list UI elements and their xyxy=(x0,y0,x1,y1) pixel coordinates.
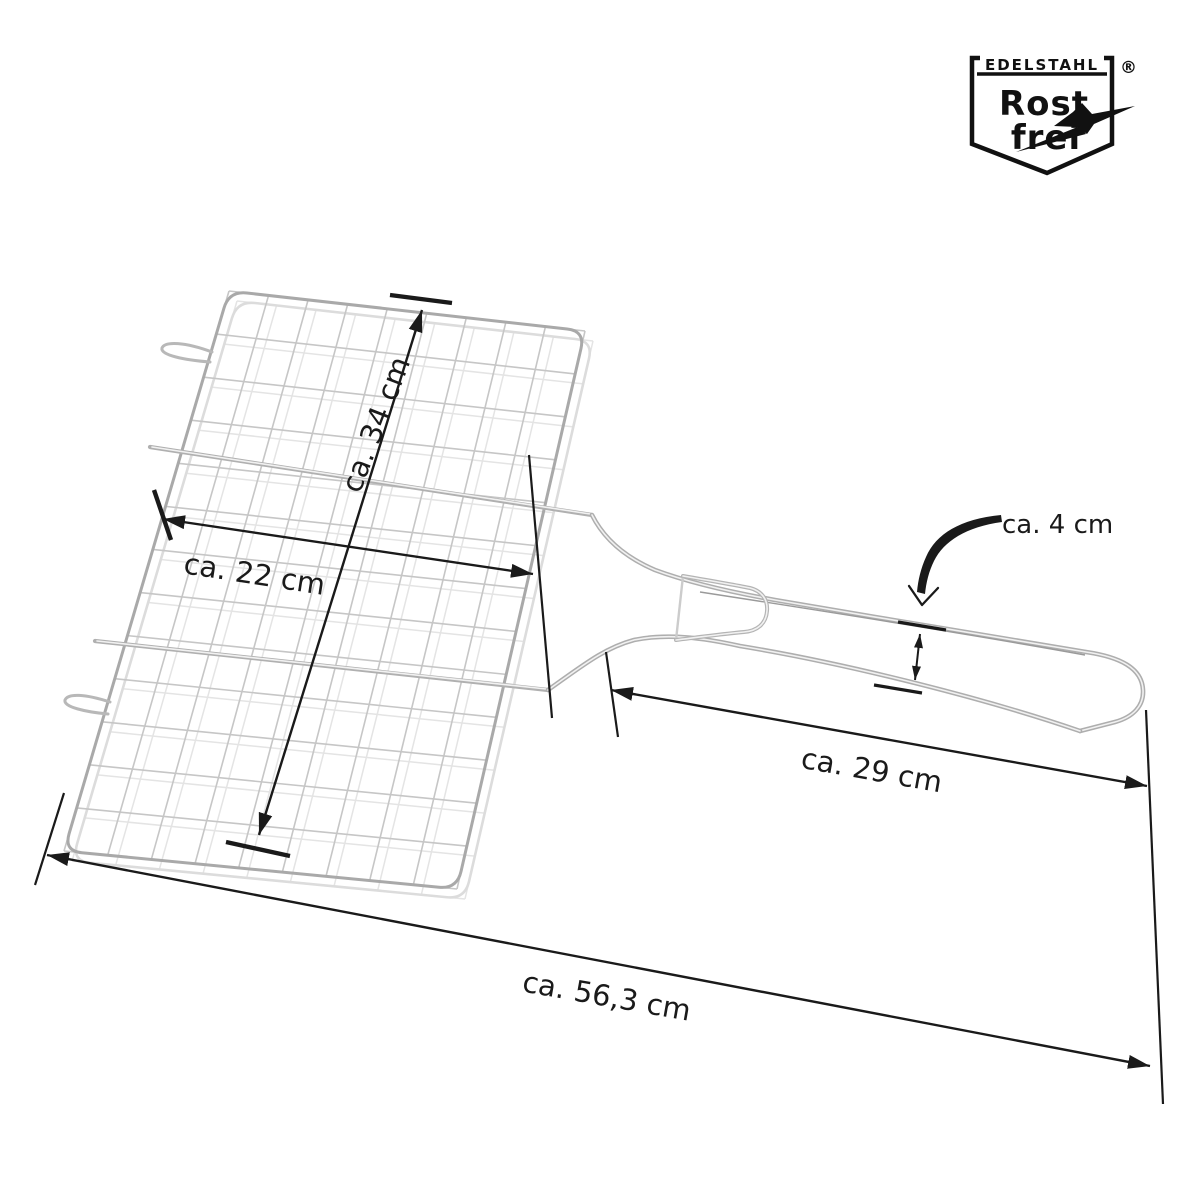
logo-registered-mark: ® xyxy=(1120,58,1137,78)
mesh-wire xyxy=(123,689,505,728)
grill-mesh-front-layer xyxy=(64,291,585,889)
mesh-frame xyxy=(68,293,582,888)
dimension-tick xyxy=(390,295,452,303)
dimension-extension xyxy=(1146,710,1163,1104)
mesh-wire xyxy=(77,808,467,846)
rostfrei-logo: EDELSTAHL ® Rost frei xyxy=(972,56,1137,173)
dimension-total-length: ca. 56,3 cm xyxy=(35,793,1150,1066)
dimension-tick xyxy=(226,842,290,856)
dimension-line-4 xyxy=(915,634,920,680)
dimension-tick xyxy=(874,685,922,693)
mesh-wire xyxy=(127,636,506,675)
mesh-wire xyxy=(378,332,514,890)
dimension-grid-width: ca. 22 cm xyxy=(154,455,552,718)
dimension-extension xyxy=(35,793,64,885)
mesh-wire xyxy=(85,818,475,856)
mesh-hook-upper xyxy=(162,343,212,362)
mesh-wire xyxy=(413,327,545,885)
dimension-label-4: ca. 4 cm xyxy=(1002,510,1113,540)
product-dimension-diagram: ca. 34 cm ca. 22 cm ca. 4 cm ca. 29 cm c… xyxy=(0,0,1200,1200)
dimension-handle-length: ca. 29 cm xyxy=(606,652,1163,1104)
dimension-label-22: ca. 22 cm xyxy=(182,546,328,601)
mesh-hook-lower xyxy=(65,695,110,714)
dimension-extension xyxy=(606,652,618,737)
curved-pointer xyxy=(917,515,1002,594)
mesh-wire xyxy=(290,323,434,882)
handle-wire-lower xyxy=(548,637,1080,731)
logo-header: EDELSTAHL xyxy=(985,56,1099,74)
dimension-handle-gap: ca. 4 cm xyxy=(874,510,1113,693)
mesh-wire xyxy=(89,765,476,803)
mesh-wire xyxy=(148,603,524,642)
grill-basket-drawing: ca. 34 cm ca. 22 cm ca. 4 cm ca. 29 cm c… xyxy=(0,0,1200,1200)
dimension-label-34: ca. 34 cm xyxy=(334,352,417,497)
mesh-wire xyxy=(102,722,486,760)
dimension-line-total xyxy=(47,855,1150,1066)
handle-wire-upper xyxy=(592,515,1143,731)
mesh-wire xyxy=(110,732,494,770)
handle-slider-ring xyxy=(676,576,767,640)
mesh-wire xyxy=(174,516,544,555)
dimension-label-29: ca. 29 cm xyxy=(799,741,945,799)
mesh-wire xyxy=(97,775,484,813)
mesh-wire xyxy=(334,328,474,887)
